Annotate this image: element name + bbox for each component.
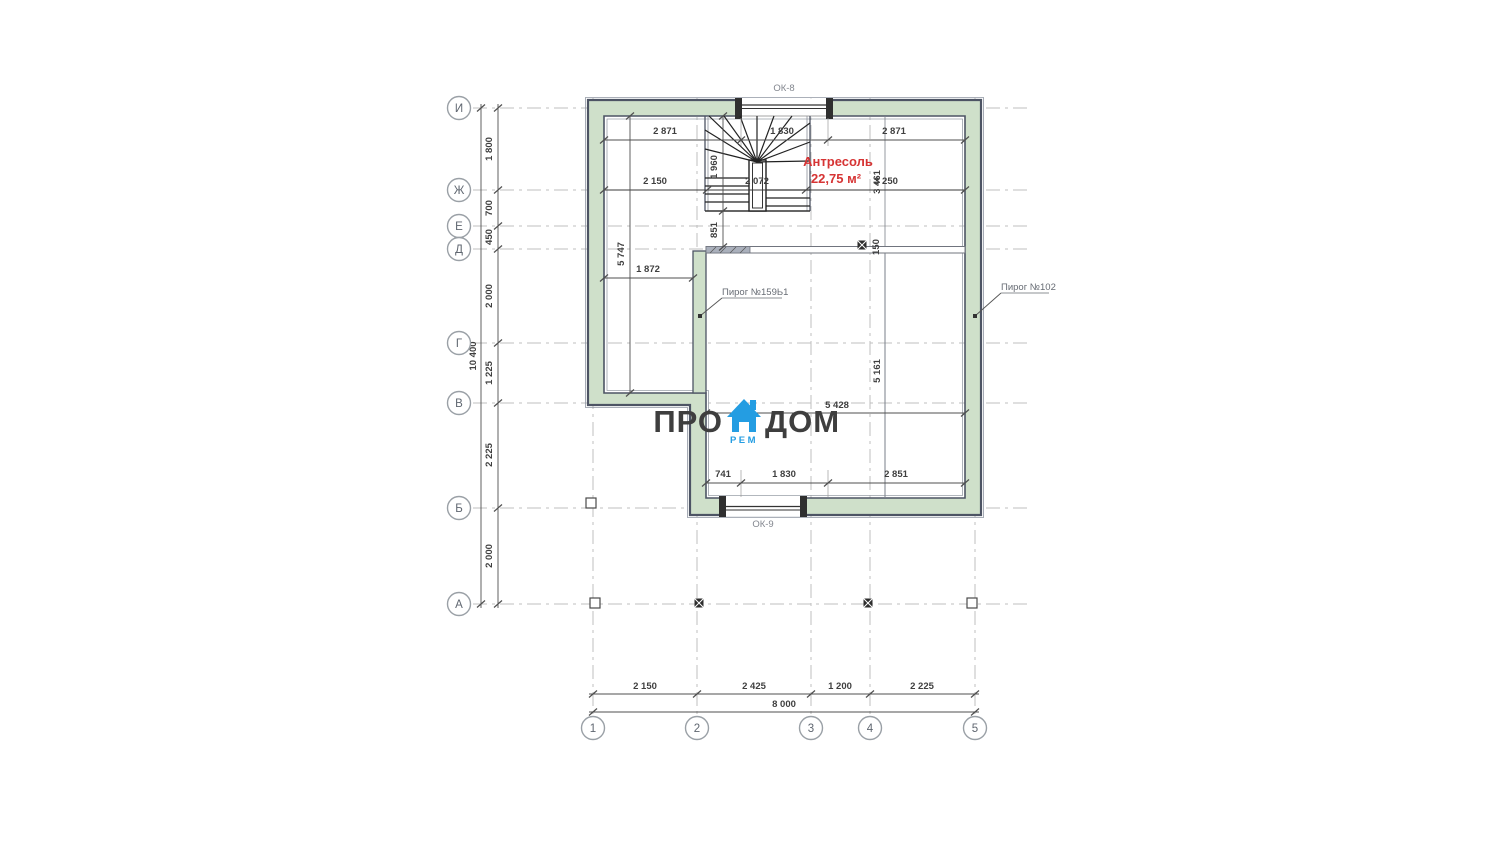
axis-row-e: Е (455, 221, 463, 233)
dim-top-3: 2 871 (882, 126, 906, 137)
axis-col-4: 4 (867, 723, 874, 735)
dim-left-seg-7: 2 000 (484, 544, 495, 568)
logo-text-dom: ДОМ (765, 404, 840, 439)
dim-top-2: 1 830 (770, 126, 794, 137)
dim-stair-to-wall: 851 (709, 221, 720, 238)
plan-dimensions: 2 871 1 830 2 871 2 150 2 072 3 250 3 46… (600, 113, 969, 498)
room-name: Антресоль (803, 154, 873, 169)
axis-col-1: 1 (590, 723, 596, 735)
logo-text-rem: РЕМ (730, 435, 758, 446)
callout-pirog-left: Пирог №159Ь1 (698, 287, 788, 318)
axis-row-b: Б (455, 503, 463, 515)
callout-pirog-right: Пирог №102 (973, 282, 1056, 318)
floor-plan-canvas: 10 400 1 800 700 450 2 000 1 225 2 225 2… (0, 0, 1500, 844)
left-dimension-chain: 10 400 1 800 700 450 2 000 1 225 2 225 2… (468, 104, 502, 608)
dim-corridor-width: 1 872 (636, 264, 660, 275)
dim-top-1: 2 871 (653, 126, 677, 137)
callout-pirog-right-label: Пирог №102 (1001, 282, 1056, 293)
dim-bot-2: 1 830 (772, 469, 796, 480)
logo-text-pro: ПРО (653, 404, 723, 439)
axis-col-5: 5 (972, 723, 978, 735)
dim-bottom-seg-1: 2 150 (633, 681, 657, 692)
axis-row-d: Д (455, 244, 463, 256)
dim-bot-3: 2 851 (884, 469, 908, 480)
window-ok9: ОК-9 (719, 496, 807, 530)
dim-bottom-seg-4: 2 225 (910, 681, 934, 692)
window-ok8: ОК-8 (735, 83, 833, 119)
watermark-logo: ПРО ДОМ РЕМ (653, 399, 840, 446)
bottom-dimension-chain: 2 150 2 425 1 200 2 225 8 000 (589, 681, 979, 716)
window-ok8-label: ОК-8 (773, 83, 794, 94)
exterior-walls (586, 98, 984, 518)
dim-bottom-seg-3: 1 200 (828, 681, 852, 692)
callout-pirog-left-label: Пирог №159Ь1 (722, 287, 788, 298)
axis-bubbles-cols: 1 2 3 4 5 (582, 717, 987, 740)
dim-left-seg-4: 2 000 (484, 284, 495, 308)
dim-room-height: 5 161 (872, 358, 883, 382)
axis-col-2: 2 (694, 723, 700, 735)
house-icon (727, 399, 761, 432)
dim-left-seg-3: 450 (484, 229, 495, 245)
axis-row-a: А (455, 599, 463, 611)
staircase (705, 116, 810, 211)
room-label: Антресоль 22,75 м² (803, 154, 873, 186)
dim-3461: 3 461 (872, 169, 883, 193)
dim-bot-1: 741 (715, 469, 732, 480)
dim-left-seg-5: 1 225 (484, 360, 495, 384)
axis-row-zh: Ж (454, 185, 465, 197)
dim-zh-1: 2 150 (643, 176, 667, 187)
axis-row-g: Г (456, 338, 463, 350)
dim-bottom-seg-2: 2 425 (742, 681, 766, 692)
axis-col-3: 3 (808, 723, 814, 735)
dim-corridor-length: 5 747 (616, 242, 627, 266)
dim-wall-thickness: 150 (871, 239, 882, 255)
room-area: 22,75 м² (811, 171, 862, 186)
axis-row-v: В (455, 398, 463, 410)
dim-zh-2: 2 072 (745, 176, 769, 187)
dim-bottom-total: 8 000 (772, 699, 796, 710)
dim-left-seg-1: 1 800 (484, 137, 495, 161)
floor-plan-svg: 10 400 1 800 700 450 2 000 1 225 2 225 2… (0, 0, 1500, 844)
dim-left-seg-6: 2 225 (484, 442, 495, 466)
dim-stair-height: 1 960 (709, 155, 720, 179)
axis-row-i: И (455, 103, 463, 115)
window-ok9-label: ОК-9 (752, 519, 773, 530)
dim-left-seg-2: 700 (484, 200, 495, 216)
